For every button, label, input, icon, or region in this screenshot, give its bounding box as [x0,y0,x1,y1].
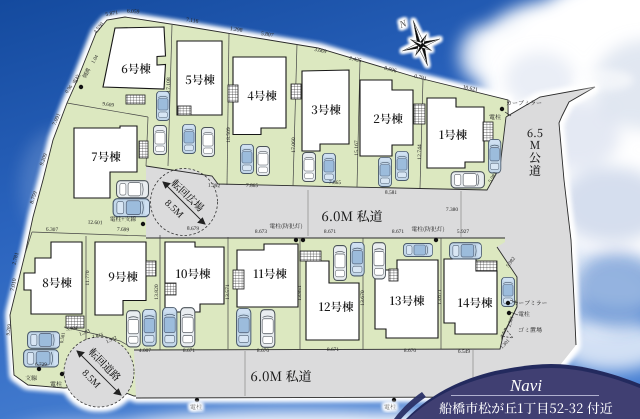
svg-text:6.549: 6.549 [458,349,470,355]
svg-text:5.927: 5.927 [457,229,469,235]
svg-text:6.729: 6.729 [35,362,47,368]
svg-text:6.059: 6.059 [127,8,140,15]
svg-text:7.699: 7.699 [117,227,130,233]
svg-text:12.744: 12.744 [417,144,423,160]
svg-text:8.671: 8.671 [183,348,195,354]
svg-text:8.671: 8.671 [324,229,336,235]
svg-text:13.820: 13.820 [154,284,160,300]
svg-text:17.060: 17.060 [291,137,297,153]
svg-text:Navi: Navi [509,376,542,395]
svg-text:8.679: 8.679 [187,226,200,232]
svg-text:8.670: 8.670 [257,348,269,354]
svg-text:11.770: 11.770 [85,270,91,285]
svg-text:8.671: 8.671 [327,347,339,353]
svg-text:17.108: 17.108 [166,77,172,93]
svg-text:18.509: 18.509 [226,127,232,143]
svg-text:15.167: 15.167 [354,140,360,156]
svg-text:13.571: 13.571 [225,284,231,300]
svg-text:8.673: 8.673 [255,229,267,235]
svg-text:13.851: 13.851 [297,285,303,301]
svg-text:8.670: 8.670 [404,348,416,354]
svg-text:13.671: 13.671 [437,289,443,305]
svg-text:8.581: 8.581 [385,190,398,196]
svg-text:7.865: 7.865 [329,180,342,186]
svg-text:12.601: 12.601 [88,220,103,227]
svg-text:4.007: 4.007 [139,348,151,354]
svg-text:8.671: 8.671 [392,229,404,235]
svg-text:13.670: 13.670 [360,290,366,306]
svg-text:1.392: 1.392 [208,183,221,189]
svg-text:6.307: 6.307 [46,227,59,233]
svg-text:7.380: 7.380 [446,207,458,213]
svg-text:7.865: 7.865 [246,183,259,189]
